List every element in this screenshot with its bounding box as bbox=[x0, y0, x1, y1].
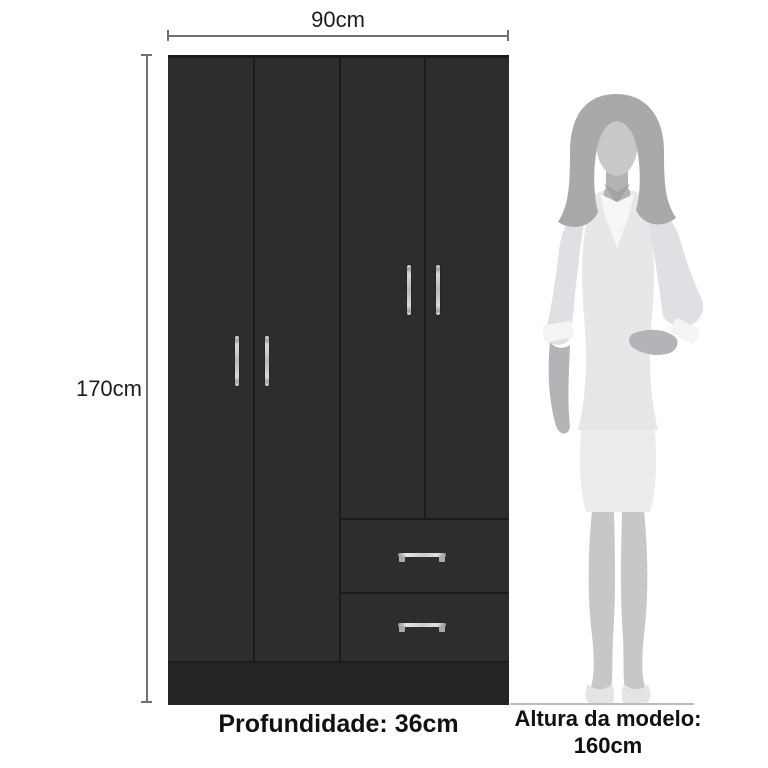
dimension-tick bbox=[141, 54, 152, 56]
door-handle bbox=[407, 265, 411, 315]
model-silhouette bbox=[528, 90, 708, 705]
door-handle bbox=[265, 336, 269, 386]
model-hand bbox=[549, 342, 570, 434]
drawer-seam-middle bbox=[339, 592, 509, 594]
dimension-tick bbox=[507, 30, 509, 41]
dimension-tick bbox=[167, 30, 169, 41]
model-cuff bbox=[542, 321, 574, 343]
door-seam bbox=[253, 55, 255, 663]
wardrobe-base bbox=[168, 663, 509, 705]
width-dimension-label: 90cm bbox=[268, 8, 408, 32]
wardrobe bbox=[168, 55, 509, 705]
depth-label: Profundidade: 36cm bbox=[168, 710, 509, 739]
drawer-handle-mount bbox=[439, 556, 445, 562]
model-leg bbox=[589, 510, 615, 690]
drawer-handle-mount bbox=[399, 556, 405, 562]
model-leg bbox=[621, 510, 647, 690]
width-dimension-line bbox=[168, 35, 508, 37]
drawer-handle bbox=[398, 553, 446, 563]
door-handle bbox=[235, 336, 239, 386]
height-dimension-line bbox=[146, 55, 148, 703]
height-dimension-label: 170cm bbox=[50, 377, 142, 401]
ground-line bbox=[510, 703, 694, 705]
model-height-label-line2: 160cm bbox=[503, 733, 713, 760]
door-seam-center bbox=[339, 55, 341, 663]
model-height-label: Altura da modelo: 160cm bbox=[503, 706, 713, 760]
drawer-handle-mount bbox=[439, 626, 445, 632]
drawer-handle-mount bbox=[399, 626, 405, 632]
drawer-seam-top bbox=[339, 518, 509, 520]
door-seam bbox=[424, 55, 426, 519]
drawer-handle bbox=[398, 623, 446, 633]
door-handle bbox=[436, 265, 440, 315]
model-height-label-line1: Altura da modelo: bbox=[503, 706, 713, 733]
dimension-tick bbox=[141, 701, 152, 703]
